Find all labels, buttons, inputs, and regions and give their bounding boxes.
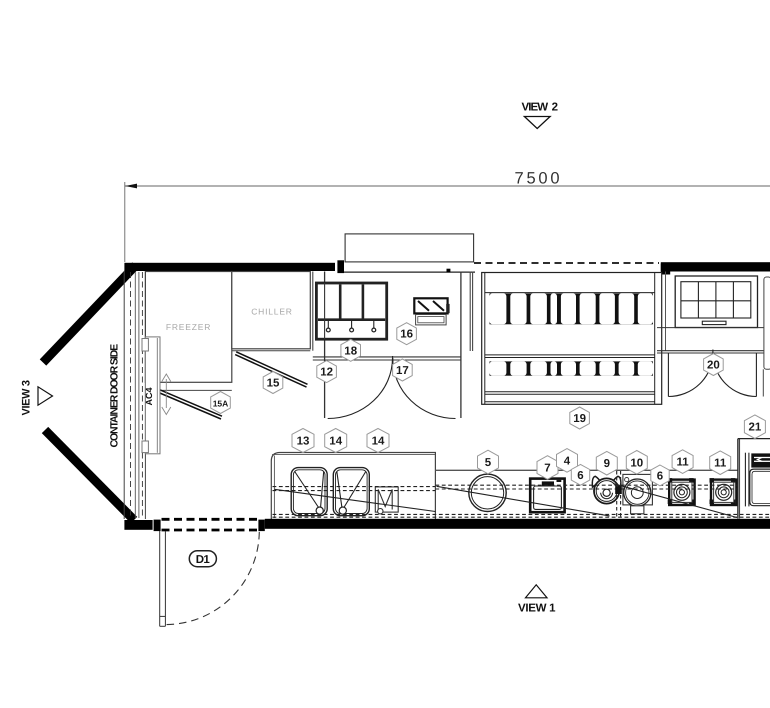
svg-text:12: 12 — [320, 367, 333, 379]
svg-text:D1: D1 — [196, 554, 211, 566]
svg-text:VIEW 3: VIEW 3 — [21, 380, 33, 416]
svg-text:19: 19 — [573, 413, 586, 425]
svg-text:21: 21 — [749, 422, 762, 434]
svg-text:6: 6 — [657, 470, 663, 482]
svg-text:VIEW 2: VIEW 2 — [522, 102, 559, 114]
svg-text:4: 4 — [564, 455, 571, 467]
svg-text:18: 18 — [344, 345, 357, 357]
svg-text:9: 9 — [604, 458, 610, 470]
svg-text:AC4: AC4 — [144, 387, 154, 405]
svg-text:CHILLER: CHILLER — [251, 307, 293, 317]
svg-text:6: 6 — [577, 470, 583, 482]
svg-text:14: 14 — [329, 436, 342, 448]
svg-text:17: 17 — [396, 365, 409, 377]
svg-text:15: 15 — [267, 378, 280, 390]
svg-text:10: 10 — [630, 457, 643, 469]
svg-text:14: 14 — [372, 436, 385, 448]
svg-text:7: 7 — [544, 463, 550, 475]
svg-text:11: 11 — [677, 457, 690, 469]
svg-text:20: 20 — [707, 360, 720, 372]
svg-text:5: 5 — [485, 457, 492, 469]
svg-text:16: 16 — [400, 329, 413, 341]
svg-text:FREEZER: FREEZER — [166, 322, 211, 332]
svg-text:VIEW 1: VIEW 1 — [518, 603, 556, 615]
svg-text:15A: 15A — [213, 399, 229, 409]
svg-text:CONTAINER DOOR SIDE: CONTAINER DOOR SIDE — [108, 344, 120, 448]
svg-text:11: 11 — [714, 458, 727, 470]
svg-text:13: 13 — [297, 436, 310, 448]
